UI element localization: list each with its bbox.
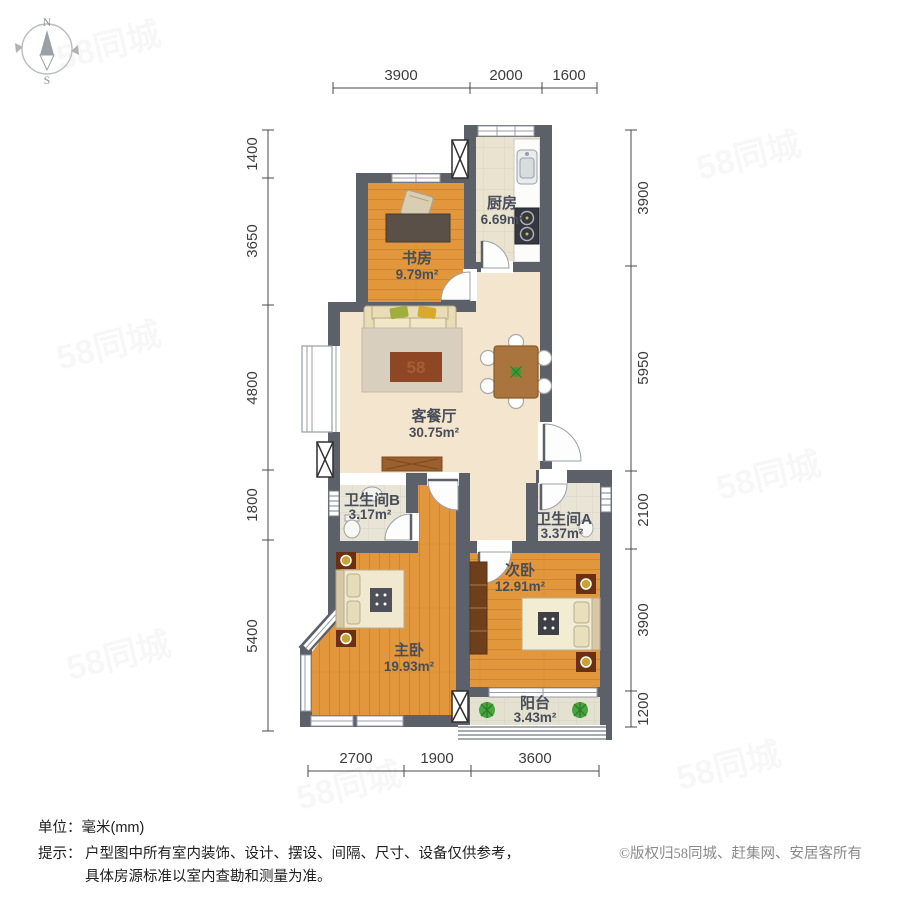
dim-left-2: 4800 — [244, 371, 261, 404]
dim-left-1: 3650 — [244, 224, 261, 257]
floorplan-page: 58同城 58同城 58同城 58同城 58同城 58同城 58同城 N S — [0, 0, 900, 900]
dim-top-1: 2000 — [489, 67, 522, 84]
compass-south-label: S — [44, 73, 51, 87]
kitchen-sink — [517, 150, 537, 184]
dim-right-4: 1200 — [635, 692, 652, 725]
dim-top-2: 1600 — [552, 67, 585, 84]
dim-right-3: 3900 — [635, 603, 652, 636]
dim-left-4: 5400 — [244, 619, 261, 652]
room-label-living: 客餐厅 — [410, 407, 456, 425]
copyright-text: ©版权归58同城、赶集网、安居客所有 — [619, 845, 862, 862]
dim-bottom-1: 1900 — [420, 750, 453, 767]
living-bay-window — [302, 346, 340, 432]
room-area-bathroom-a: 3.37m² — [541, 526, 584, 541]
floorplan-canvas: 58同城 58同城 58同城 58同城 58同城 58同城 58同城 N S — [0, 0, 900, 900]
flue-shaft-living — [317, 442, 333, 477]
study-window — [392, 174, 440, 182]
compass-needle-south — [40, 55, 54, 70]
study-desk — [386, 214, 450, 242]
bed-tray — [370, 588, 392, 612]
watermark-text: 58同城 — [63, 625, 175, 687]
room-area-balcony: 3.43m² — [514, 710, 557, 725]
watermark-text: 58同城 — [713, 445, 825, 507]
tip-line-2: 具体房源标准以室内查勘和测量为准。 — [85, 868, 332, 885]
tip-label: 提示： — [38, 845, 82, 862]
dim-left-3: 1800 — [244, 488, 261, 521]
bathroom-b-window — [329, 491, 339, 516]
master-bedroom-windows — [311, 716, 403, 726]
plant — [572, 702, 588, 718]
dim-bottom-2: 3600 — [518, 750, 551, 767]
room-area-bathroom-b: 3.17m² — [349, 507, 392, 522]
dim-left-0: 1400 — [244, 137, 261, 170]
laptop — [538, 612, 559, 635]
watermark-text: 58同城 — [53, 15, 165, 77]
compass-needle-north — [40, 30, 54, 55]
plant — [479, 702, 495, 718]
dim-right-0: 3900 — [635, 181, 652, 214]
room-area-second-bedroom: 12.91m² — [495, 579, 546, 594]
watermark-text: 58同城 — [693, 125, 805, 187]
dim-right-2: 2100 — [635, 493, 652, 526]
footer: 单位：毫米(mm) 提示： 户型图中所有室内装饰、设计、摆设、间隔、尺寸、设备仅… — [38, 818, 862, 885]
room-label-kitchen: 厨房 — [487, 194, 517, 212]
room-area-study: 9.79m² — [396, 267, 439, 282]
dim-top-0: 3900 — [384, 67, 417, 84]
balcony-railing — [458, 725, 606, 740]
bathroom-a-window — [601, 487, 611, 512]
console-table — [382, 457, 442, 471]
table-plant — [510, 366, 522, 378]
entry-door — [544, 424, 581, 461]
flue-shaft-kitchen — [452, 140, 468, 178]
wardrobe — [470, 562, 487, 654]
watermark-text: 58同城 — [53, 315, 165, 377]
room-label-master-bedroom: 主卧 — [394, 641, 424, 659]
room-label-second-bedroom: 次卧 — [505, 561, 535, 579]
room-area-master-bedroom: 19.93m² — [384, 659, 435, 674]
kitchen-window — [478, 126, 534, 136]
flue-shaft-balcony — [452, 691, 468, 722]
rug: 58 — [362, 328, 462, 392]
rug-watermark: 58 — [407, 358, 426, 377]
room-area-kitchen: 6.69m² — [481, 212, 524, 227]
dim-right-1: 5950 — [635, 351, 652, 384]
room-area-living: 30.75m² — [409, 425, 460, 440]
tip-line-1: 户型图中所有室内装饰、设计、摆设、间隔、尺寸、设备仅供参考， — [85, 845, 520, 862]
room-label-study: 书房 — [402, 249, 432, 267]
watermark-text: 58同城 — [673, 735, 785, 797]
compass-north-label: N — [43, 15, 52, 29]
dim-bottom-0: 2700 — [339, 750, 372, 767]
unit-label: 单位：毫米(mm) — [38, 818, 144, 836]
